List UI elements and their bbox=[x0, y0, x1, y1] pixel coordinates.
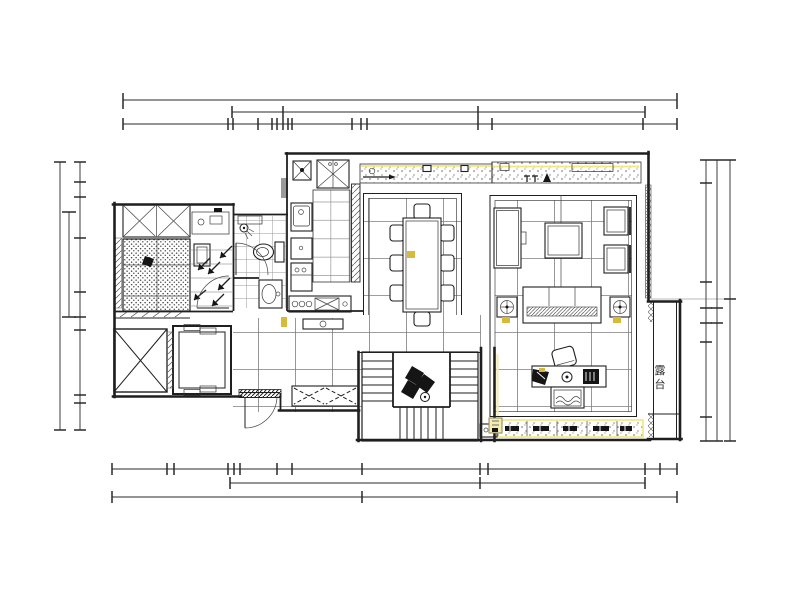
kitchen-floor-tiles bbox=[313, 190, 350, 282]
elevator-room bbox=[167, 325, 231, 396]
sofa bbox=[523, 287, 601, 323]
armchair bbox=[604, 245, 630, 273]
small-appliance bbox=[293, 161, 311, 180]
yellow-desk-marker bbox=[539, 368, 545, 372]
bay-window-dining bbox=[360, 164, 492, 183]
kitchen-wall-hatch bbox=[352, 184, 361, 282]
bed bbox=[123, 239, 190, 311]
coffee-table bbox=[545, 223, 582, 258]
dining-chair bbox=[440, 255, 454, 271]
wall-hatch bbox=[167, 332, 173, 388]
bottom-bay-window bbox=[480, 420, 643, 437]
stove-counter bbox=[289, 296, 351, 312]
dishwasher bbox=[291, 263, 312, 291]
dining-chair bbox=[440, 285, 454, 301]
wall-dots bbox=[648, 413, 653, 437]
dining-chair bbox=[390, 225, 404, 241]
door-lintel-hatch bbox=[239, 390, 281, 398]
monitor bbox=[583, 369, 599, 384]
shoe-cabinet bbox=[292, 386, 358, 406]
window-sill-stipple bbox=[492, 162, 641, 183]
floor-plan-svg bbox=[0, 0, 800, 600]
terrace-label: 露台 bbox=[653, 364, 667, 392]
yellow-floor-marker bbox=[502, 317, 510, 323]
floor-plan-page: 露台 bbox=[0, 0, 800, 600]
dining-chair bbox=[390, 255, 404, 271]
base-cabinet bbox=[291, 238, 312, 259]
vanity-sink bbox=[259, 280, 282, 308]
tv-cabinet bbox=[494, 208, 526, 268]
dining-chair bbox=[390, 285, 404, 301]
daybed-seat bbox=[551, 387, 584, 408]
window-tab bbox=[461, 166, 468, 172]
bay-window-living bbox=[492, 162, 641, 183]
side-table bbox=[610, 297, 630, 317]
yellow-floor-marker bbox=[613, 317, 621, 323]
table-yellow-marker bbox=[407, 251, 415, 258]
window-tab bbox=[423, 166, 431, 172]
side-table bbox=[497, 297, 517, 317]
console-table bbox=[303, 319, 343, 329]
void-shaft bbox=[114, 329, 167, 392]
kitchen-sink bbox=[291, 203, 312, 231]
sofa-back-hatch bbox=[527, 307, 597, 316]
nightstand bbox=[194, 244, 210, 266]
yellow-floor-marker bbox=[281, 317, 287, 327]
dining-chair bbox=[440, 225, 454, 241]
fridge bbox=[317, 160, 349, 188]
wall-dots bbox=[648, 300, 653, 322]
dining-chair bbox=[414, 204, 430, 219]
dining-chair bbox=[414, 312, 430, 326]
wardrobe bbox=[123, 205, 190, 237]
dining-table bbox=[403, 218, 441, 312]
stairs bbox=[362, 352, 478, 441]
armchair bbox=[604, 207, 630, 235]
